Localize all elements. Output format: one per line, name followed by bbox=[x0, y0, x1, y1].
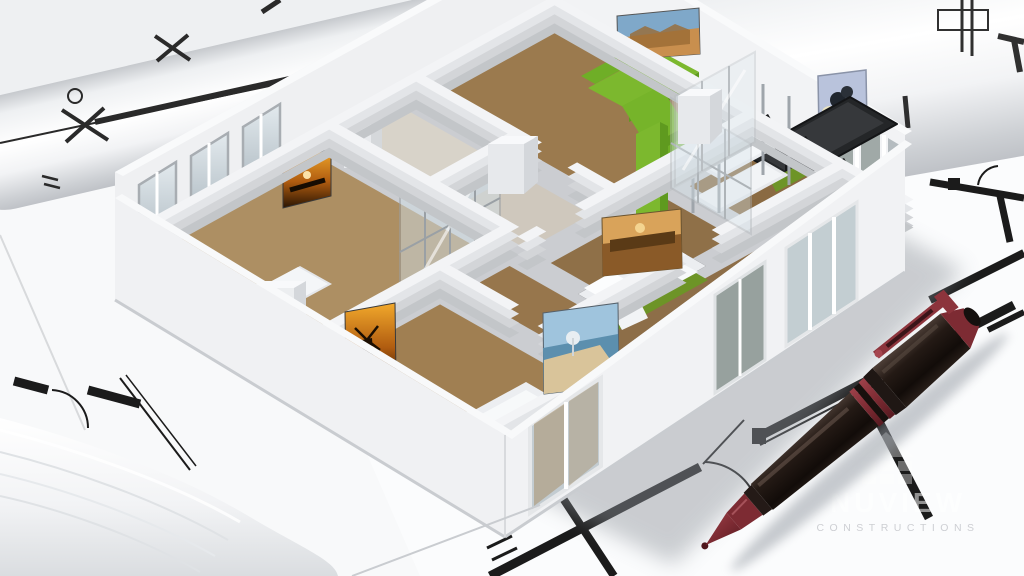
column-block-living bbox=[678, 89, 722, 144]
column-block-center bbox=[488, 136, 538, 194]
watermark-brand: NUVIEW bbox=[830, 487, 966, 518]
render-canvas: NUVIEW CONSTRUCTIONS bbox=[0, 0, 1024, 576]
wall-art-harbor-sunset bbox=[602, 209, 682, 276]
scene-3d-floorplan-render: NUVIEW CONSTRUCTIONS bbox=[0, 0, 1024, 576]
watermark-subtitle: CONSTRUCTIONS bbox=[816, 522, 979, 534]
